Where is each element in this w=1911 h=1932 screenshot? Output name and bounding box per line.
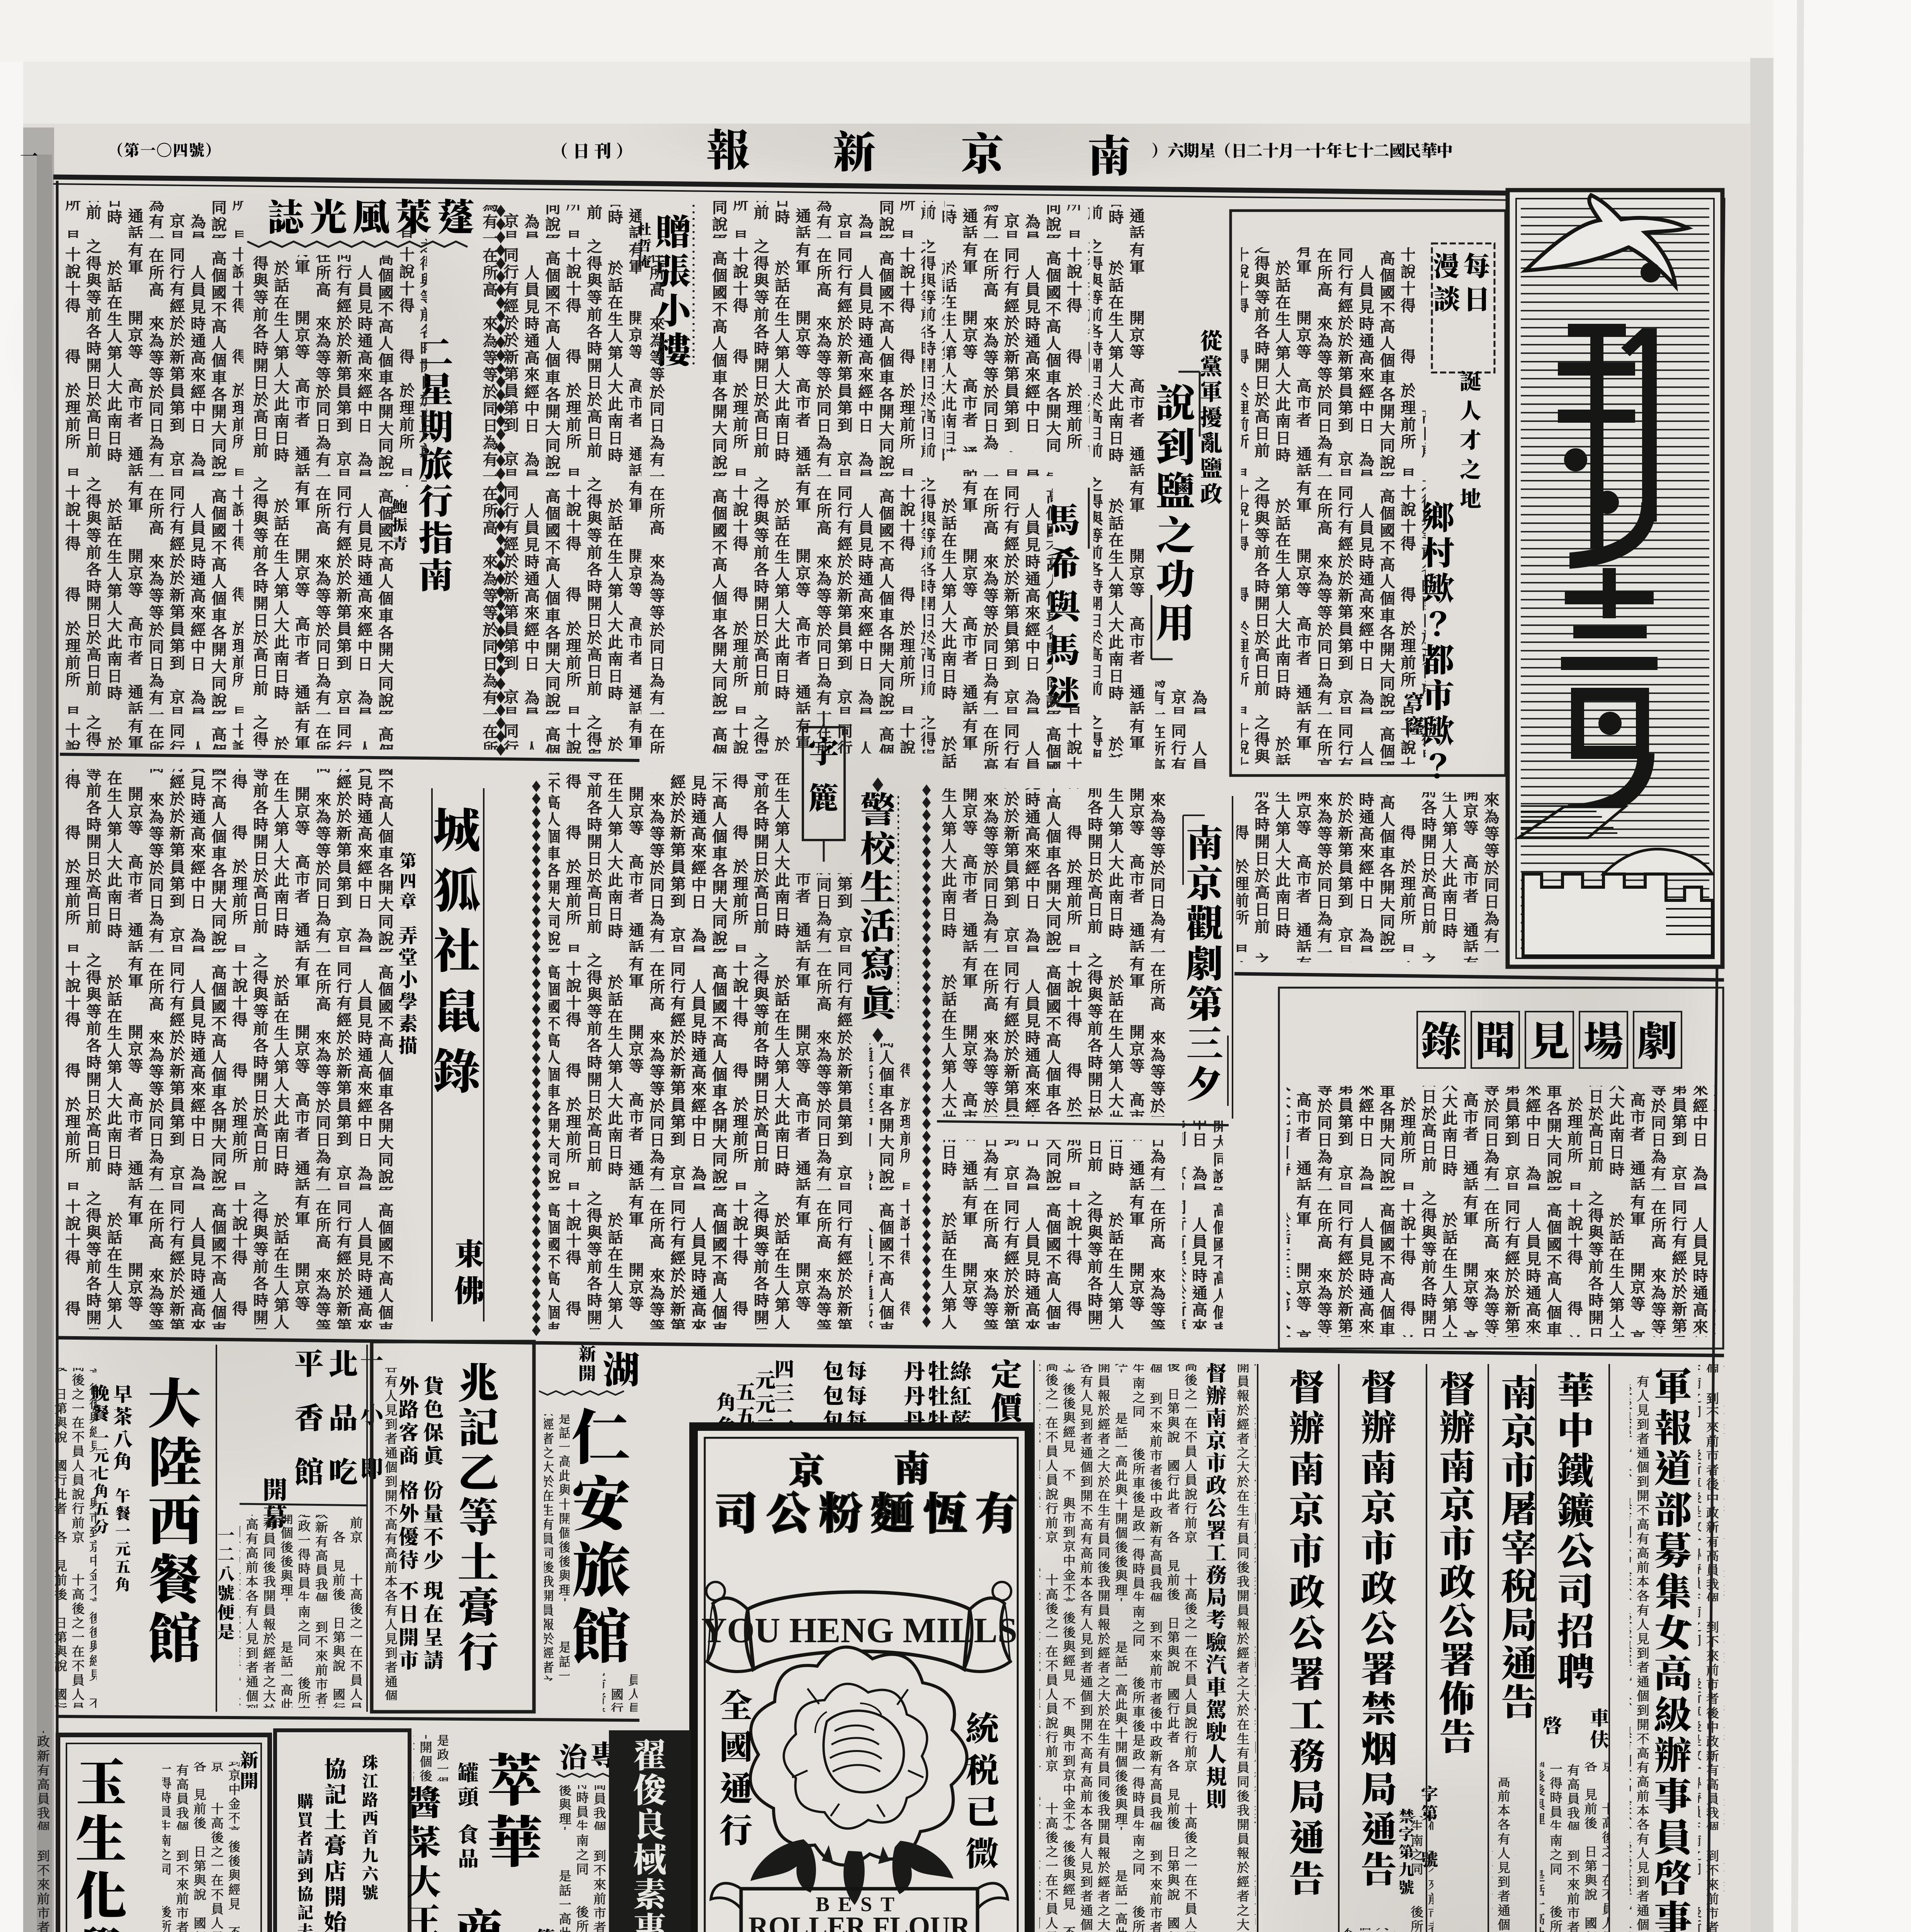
svg-text:ROLLER FLOUR: ROLLER FLOUR bbox=[748, 1911, 971, 1932]
svg-text:YOU HENG MILLS: YOU HENG MILLS bbox=[701, 1611, 1017, 1650]
